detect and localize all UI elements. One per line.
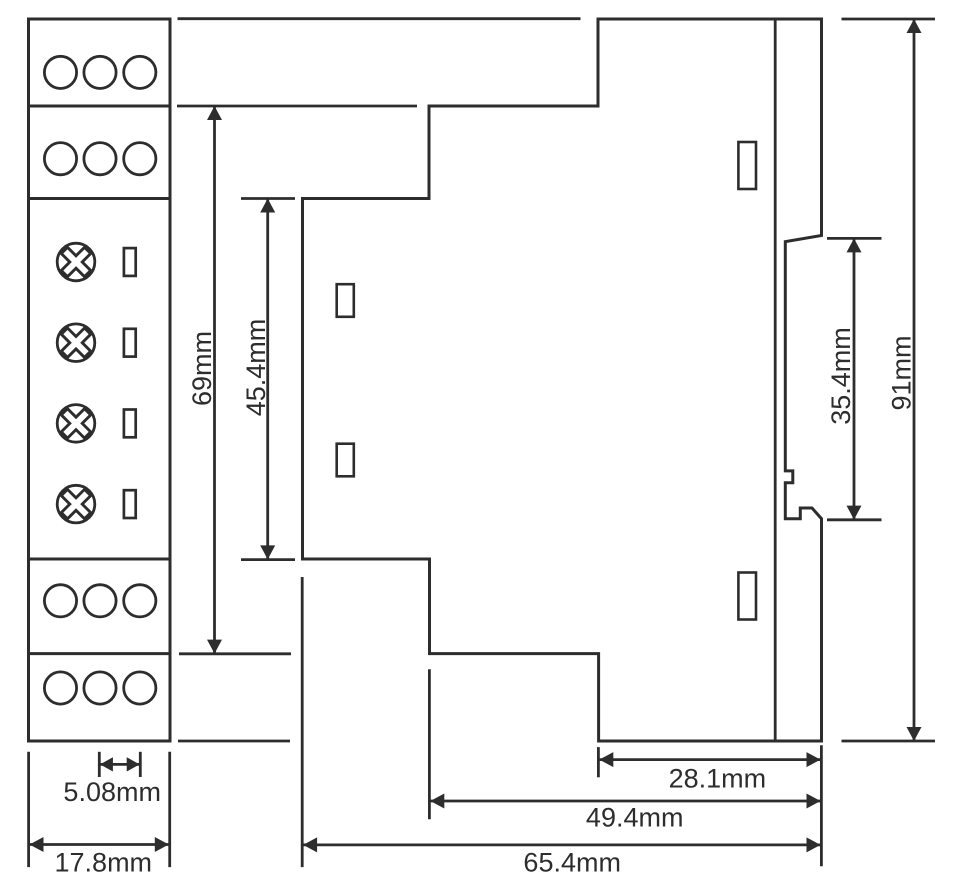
svg-text:35.4mm: 35.4mm xyxy=(826,327,856,425)
svg-text:28.1mm: 28.1mm xyxy=(669,764,767,794)
svg-text:69mm: 69mm xyxy=(187,331,217,406)
svg-text:91mm: 91mm xyxy=(887,335,917,410)
svg-text:45.4mm: 45.4mm xyxy=(241,319,271,417)
svg-text:5.08mm: 5.08mm xyxy=(63,777,161,807)
svg-text:17.8mm: 17.8mm xyxy=(55,847,153,877)
svg-text:49.4mm: 49.4mm xyxy=(586,803,684,833)
svg-text:65.4mm: 65.4mm xyxy=(523,847,621,877)
